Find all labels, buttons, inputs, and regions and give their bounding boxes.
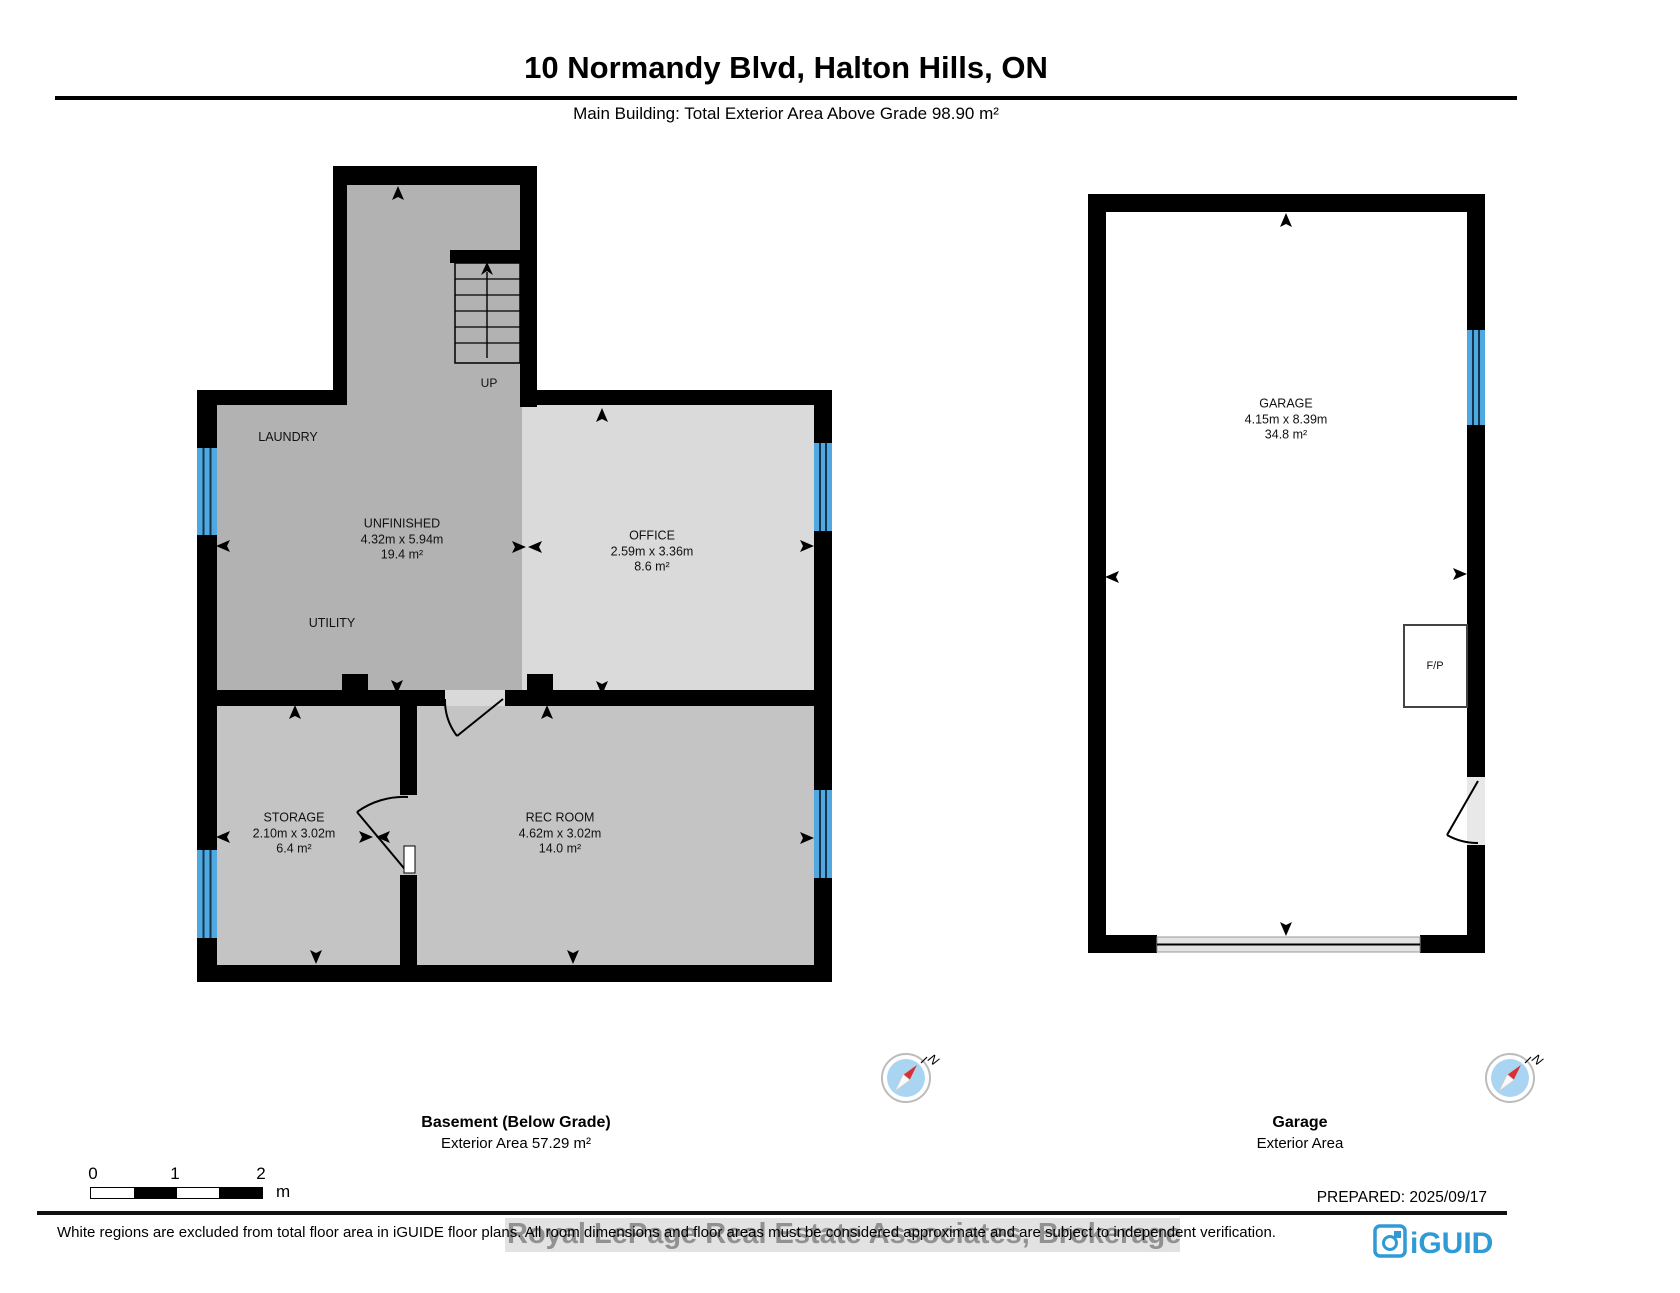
footer-divider (37, 1211, 1507, 1215)
scale-bar: 0 1 2 m (84, 1164, 314, 1206)
window-right-lower (814, 790, 832, 878)
basement-plan (197, 166, 832, 982)
garage-walls (1088, 194, 1485, 953)
window-left-upper (197, 448, 217, 535)
garage-door-panel (1157, 937, 1420, 952)
iguide-logo-graphic: iGUIDE (1372, 1220, 1492, 1262)
room-label-laundry: LAUNDRY (258, 430, 318, 446)
garage-caption: Garage Exterior Area (1257, 1114, 1344, 1152)
basement-caption: Basement (Below Grade) Exterior Area 57.… (421, 1114, 610, 1152)
disclaimer-text: White regions are excluded from total fl… (57, 1224, 1276, 1241)
room-label-storage: STORAGE 2.10m x 3.02m 6.4 m² (253, 811, 336, 858)
room-label-garage: GARAGE 4.15m x 8.39m 34.8 m² (1245, 397, 1328, 444)
iguide-box-icon (1375, 1226, 1405, 1256)
prepared-date: PREPARED: 2025/09/17 (1317, 1189, 1487, 1207)
room-label-rec-room: REC ROOM 4.62m x 3.02m 14.0 m² (519, 811, 602, 858)
scale-tick-2: 2 (256, 1164, 265, 1184)
direction-arrows-garage (1105, 213, 1467, 936)
room-label-unfinished: UNFINISHED 4.32m x 5.94m 19.4 m² (361, 517, 444, 564)
compass-icon-garage: N (1486, 1051, 1546, 1102)
room-label-office: OFFICE 2.59m x 3.36m 8.6 m² (611, 529, 694, 576)
stairs-up-label: UP (481, 376, 498, 390)
floor-plan-page: 10 Normandy Blvd, Halton Hills, ON Main … (0, 0, 1680, 1293)
scale-unit: m (276, 1182, 290, 1202)
iguide-brand-text: iGUIDE (1410, 1227, 1492, 1260)
window-right-upper (814, 443, 832, 531)
garage-side-door (1447, 777, 1485, 845)
compass-icon-basement: N (882, 1051, 942, 1102)
fireplace-label: F/P (1426, 660, 1443, 672)
iguide-logo: iGUIDE (1372, 1220, 1492, 1267)
scale-bar-ruler (90, 1187, 263, 1199)
room-label-utility: UTILITY (309, 616, 356, 632)
window-garage-right (1467, 330, 1485, 425)
scale-tick-1: 1 (170, 1164, 179, 1184)
garage-plan (1088, 194, 1485, 953)
scale-tick-0: 0 (88, 1164, 97, 1184)
floor-plan-drawing: N N (0, 0, 1680, 1293)
window-left-lower (197, 850, 217, 938)
